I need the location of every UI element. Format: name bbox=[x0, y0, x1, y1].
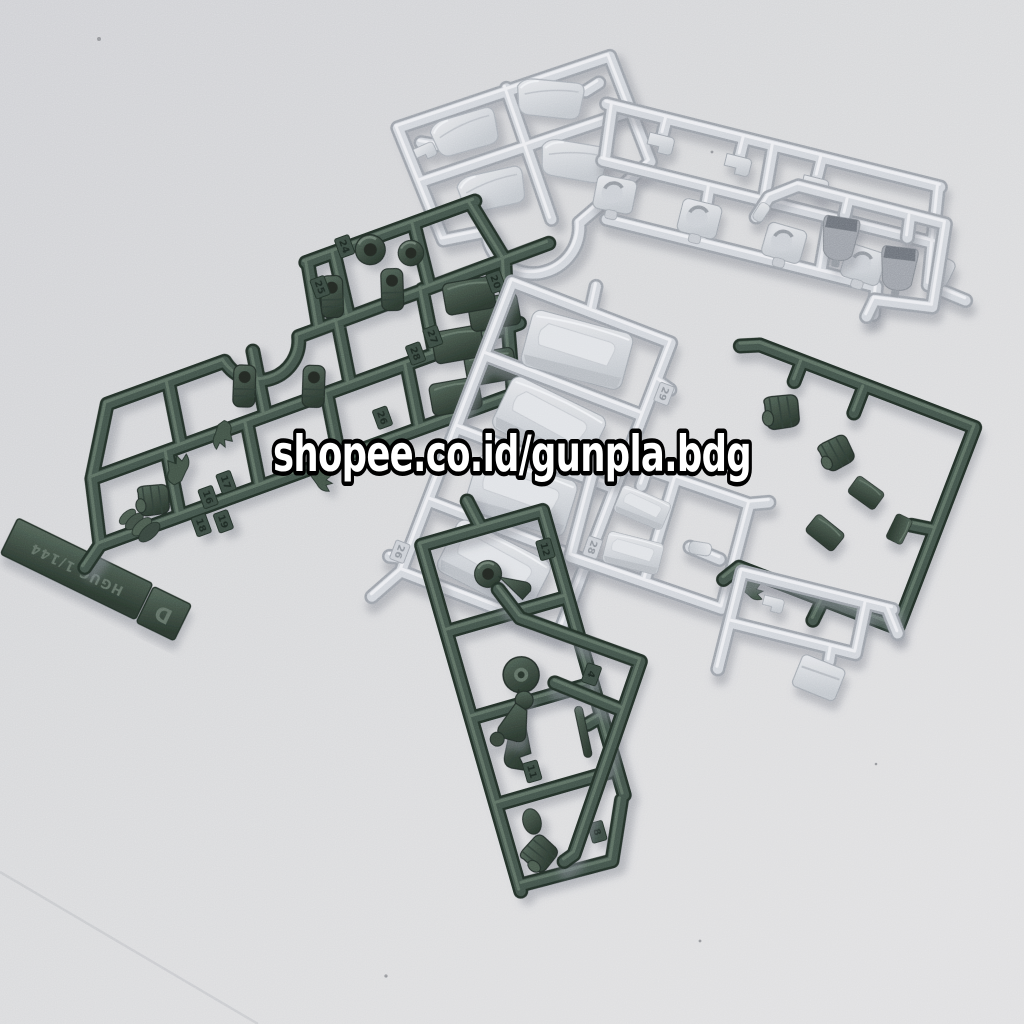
light-wash bbox=[0, 0, 1024, 1024]
watermark-text: shopee.co.id/gunpla.bdg bbox=[273, 425, 751, 483]
photo-canvas: HGUC 1/144 D 24 25 20 28 27 26 16 17 18 … bbox=[0, 0, 1024, 1024]
photo: HGUC 1/144 D 24 25 20 28 27 26 16 17 18 … bbox=[0, 0, 1024, 1024]
